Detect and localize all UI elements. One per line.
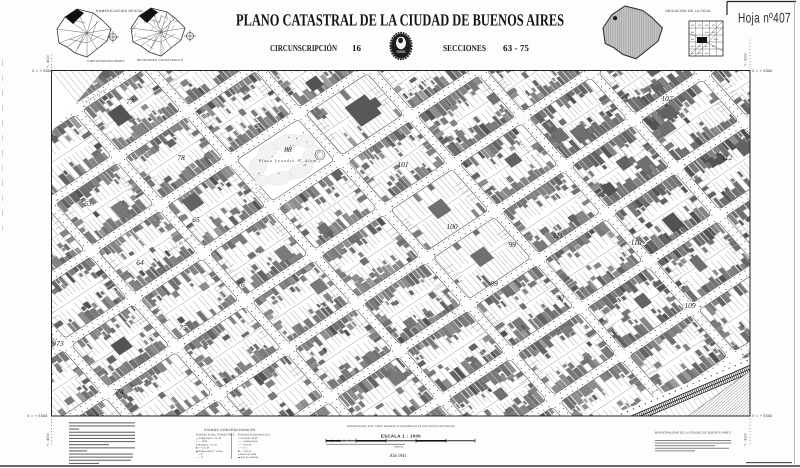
svg-text:101: 101 [397,160,408,169]
svg-text:CIRCUNSCRIPCIONES: CIRCUNSCRIPCIONES [87,59,124,63]
svg-text:Año 1941: Año 1941 [390,453,407,459]
svg-text:SIGNOS CONVENCIONALES: SIGNOS CONVENCIONALES [204,428,255,432]
svg-text:Plaza Leandro N. Alem: Plaza Leandro N. Alem [258,158,317,163]
svg-text:AGRIMENSORES EFECTUADO DURAN: AGRIMENSORES EFECTUADO DURANTE LA INTEND… [346,425,455,428]
svg-text:Y - 3000: Y - 3000 [744,53,748,66]
svg-text:112: 112 [722,153,733,162]
svg-text:99: 99 [508,240,516,249]
svg-text:111: 111 [553,231,563,240]
svg-text:Y - 4000: Y - 4000 [46,433,50,446]
svg-text:109: 109 [684,301,696,310]
svg-text:Y - 4000: Y - 4000 [46,55,50,68]
svg-text:73: 73 [56,339,64,348]
svg-text:▬ Eje de calzada: ▬ Eje de calzada [238,456,259,459]
svg-text:88: 88 [284,145,292,154]
svg-text:X = + 6000: X = + 6000 [32,69,53,73]
svg-text:Hoja nº407: Hoja nº407 [738,10,791,26]
svg-text:SECCIONES CATASTRALES: SECCIONES CATASTRALES [137,58,183,62]
svg-text:110: 110 [631,238,642,247]
svg-text:Y - 3000: Y - 3000 [744,433,748,446]
svg-text:77: 77 [126,97,134,106]
svg-text:90: 90 [556,293,564,302]
svg-text:MUNICIPALIDAD DE LA CIUDAD: MUNICIPALIDAD DE LA CIUDAD DE BUENOS AIR… [655,431,731,435]
svg-text:SECCIONES: SECCIONES [443,43,486,53]
svg-text:63: 63 [84,199,92,208]
svg-text:X = + 5500: X = + 5500 [27,414,48,418]
svg-text:· — 3°: · — 3° [196,456,203,459]
svg-text:NOMENCLATURA OFICIAL: NOMENCLATURA OFICIAL [96,9,144,13]
svg-text:74: 74 [116,387,124,396]
svg-text:78: 78 [177,153,185,162]
svg-text:ESCALA 1 : 1000: ESCALA 1 : 1000 [381,434,421,439]
svg-text:16: 16 [352,43,362,53]
svg-text:UBICACIÓN DE LA HOJA: UBICACIÓN DE LA HOJA [665,9,710,13]
svg-text:76: 76 [237,280,245,289]
svg-text:X = + 6000: X = + 6000 [752,69,773,73]
svg-text:X = + 5500: X = + 5500 [752,414,773,418]
svg-text:89: 89 [490,279,498,288]
svg-text:64: 64 [136,258,144,267]
svg-text:63 - 75: 63 - 75 [503,43,530,53]
svg-text:CIRCUNSCRIPCIÓN: CIRCUNSCRIPCIÓN [270,43,337,53]
svg-text:PLANO CATASTRAL DE LA CIUDAD D: PLANO CATASTRAL DE LA CIUDAD DE BUENOS A… [236,11,564,30]
svg-text:75: 75 [179,323,187,332]
svg-text:100: 100 [446,222,458,231]
svg-text:102: 102 [661,94,673,103]
svg-text:65: 65 [192,215,200,224]
svg-text:Metros: Metros [394,446,404,449]
